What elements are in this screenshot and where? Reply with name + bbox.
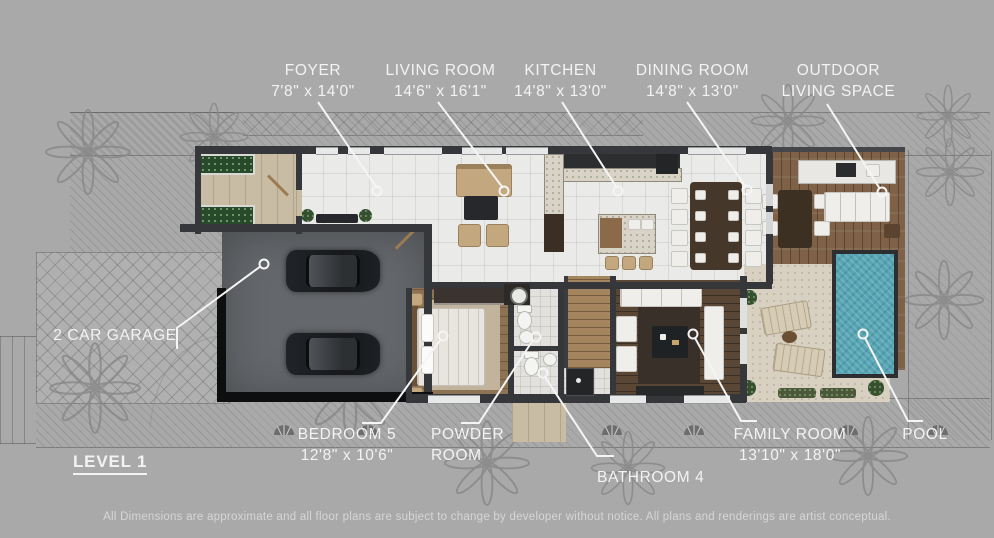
powder-room-label-line2: ROOM <box>431 445 541 466</box>
outdoor-daybed <box>824 192 890 222</box>
cutting-board <box>600 218 622 248</box>
place-setting <box>695 253 706 263</box>
car-roof <box>306 338 360 370</box>
bedroom5-label: BEDROOM 5 12'8" x 10'6" <box>277 424 417 466</box>
hedge <box>820 388 856 398</box>
place-setting <box>695 211 706 221</box>
pool-label-name: POOL <box>880 424 970 445</box>
shower-drain <box>576 378 581 383</box>
deck-north-edge <box>772 147 905 152</box>
foyer-label-name: FOYER <box>243 60 383 81</box>
dining-chair <box>671 230 688 246</box>
place-setting <box>728 190 739 200</box>
window <box>428 395 480 404</box>
kitchen-side-counter <box>544 154 564 218</box>
dining-chair <box>745 251 762 267</box>
dining-room-label-dims: 14'8" x 13'0" <box>620 81 765 102</box>
place-setting <box>728 211 739 221</box>
bedroom5-label-name: BEDROOM 5 <box>277 424 417 445</box>
garage-label: 2 CAR GARAGE <box>45 325 185 346</box>
living-room-label-name: LIVING ROOM <box>368 60 513 81</box>
table-decor <box>660 334 666 340</box>
bar-stool <box>622 256 636 270</box>
kitchen-lower-cabinet <box>544 214 564 252</box>
foyer-label: FOYER 7'8" x 14'0" <box>243 60 383 102</box>
grill <box>836 163 856 177</box>
family-coffee-table <box>652 326 688 358</box>
dining-chair <box>671 251 688 267</box>
outdoor-dining-table <box>778 190 812 248</box>
garden-lattice-band <box>243 113 643 136</box>
disclaimer-text: All Dimensions are approximate and all f… <box>0 511 994 523</box>
dining-room-label: DINING ROOM 14'8" x 13'0" <box>620 60 765 102</box>
powder-room-label-line1: POWDER <box>431 424 541 445</box>
window <box>506 147 548 155</box>
bar-stool <box>605 256 619 270</box>
potted-plant <box>359 209 372 222</box>
outdoor-side-table <box>884 224 900 238</box>
coffee-table <box>464 196 498 220</box>
garage-north-wall <box>180 224 432 232</box>
window <box>610 395 646 404</box>
place-setting <box>728 253 739 263</box>
toilet <box>517 311 532 330</box>
armchair <box>486 224 509 247</box>
garage-label-name: 2 CAR GARAGE <box>45 325 185 346</box>
car <box>286 333 380 375</box>
slider-door <box>766 212 773 234</box>
window <box>462 147 502 155</box>
sink <box>543 353 557 366</box>
window <box>348 147 370 155</box>
outdoor-living-label: OUTDOOR LIVING SPACE <box>766 60 911 102</box>
table-decor <box>672 340 679 345</box>
dining-chair <box>671 209 688 225</box>
bedroom5-label-dims: 12'8" x 10'6" <box>277 445 417 466</box>
floor-plan-page: { "title": "Level 1 Floor Plan", "colors… <box>0 0 994 538</box>
family-room-label-name: FAMILY ROOM <box>714 424 866 445</box>
pillow <box>421 314 434 342</box>
side-fence <box>0 336 36 444</box>
window <box>384 147 442 155</box>
outdoor-sink <box>866 164 880 177</box>
foyer-doorway <box>296 190 302 216</box>
dining-room-label-name: DINING ROOM <box>620 60 765 81</box>
pool-label: POOL <box>880 424 970 445</box>
sofa <box>456 164 512 197</box>
bathroom4-label-name: BATHROOM 4 <box>597 467 737 488</box>
dining-chair <box>745 209 762 225</box>
right-garden-strip <box>908 150 992 440</box>
window <box>688 147 746 155</box>
dining-chair <box>745 230 762 246</box>
bath-stair-wall <box>558 286 564 396</box>
refrigerator <box>656 154 678 174</box>
living-room-label: LIVING ROOM 14'6" x 16'1" <box>368 60 513 102</box>
level-label: LEVEL 1 <box>73 452 147 475</box>
bathroom4-label: BATHROOM 4 <box>597 467 737 488</box>
stair-family-wall <box>610 276 616 402</box>
car-roof <box>306 255 360 287</box>
armchair <box>616 346 637 372</box>
family-window <box>740 298 747 328</box>
family-window <box>740 334 747 364</box>
place-setting <box>695 190 706 200</box>
kitchen-label: KITCHEN 14'8" x 13'0" <box>498 60 623 102</box>
hedge <box>778 388 816 398</box>
shrub <box>868 380 884 396</box>
outdoor-chair <box>814 221 830 236</box>
kitchen-label-dims: 14'8" x 13'0" <box>498 81 623 102</box>
garage-west-wall <box>217 288 226 400</box>
slider-door <box>766 184 773 206</box>
pillow <box>421 346 434 374</box>
garage-south-wall <box>217 392 433 402</box>
toilet <box>524 357 539 376</box>
outdoor-living-label-line2: LIVING SPACE <box>766 81 911 102</box>
place-setting <box>695 232 706 242</box>
closet <box>434 288 508 305</box>
car <box>286 250 380 292</box>
kitchen-label-name: KITCHEN <box>498 60 623 81</box>
foyer-label-dims: 7'8" x 14'0" <box>243 81 383 102</box>
living-room-label-dims: 14'6" x 16'1" <box>368 81 513 102</box>
island-sink <box>641 219 654 230</box>
bar-stool <box>639 256 653 270</box>
armchair <box>458 224 481 247</box>
dining-chair <box>671 188 688 204</box>
pool-water <box>832 250 898 378</box>
outdoor-living-label-line1: OUTDOOR <box>766 60 911 81</box>
island-sink <box>628 219 641 230</box>
place-setting <box>728 232 739 242</box>
chaise-lounge <box>704 306 724 380</box>
staircase <box>564 276 616 368</box>
family-room-label: FAMILY ROOM 13'10" x 18'0" <box>714 424 866 466</box>
family-room-label-dims: 13'10" x 18'0" <box>714 445 866 466</box>
armchair <box>616 316 637 342</box>
potted-plant <box>301 209 314 222</box>
patio-side-table <box>782 331 797 343</box>
media-console <box>316 214 358 223</box>
west-wall <box>195 146 201 234</box>
entry-planter <box>199 205 255 226</box>
washer-icon <box>510 287 528 305</box>
sink <box>519 330 534 344</box>
powder-room-label: POWDER ROOM <box>431 424 541 466</box>
window <box>684 395 730 404</box>
dining-chair <box>745 188 762 204</box>
bedroom-west-wall <box>406 288 412 396</box>
window <box>316 147 338 155</box>
entry-planter <box>199 154 255 175</box>
